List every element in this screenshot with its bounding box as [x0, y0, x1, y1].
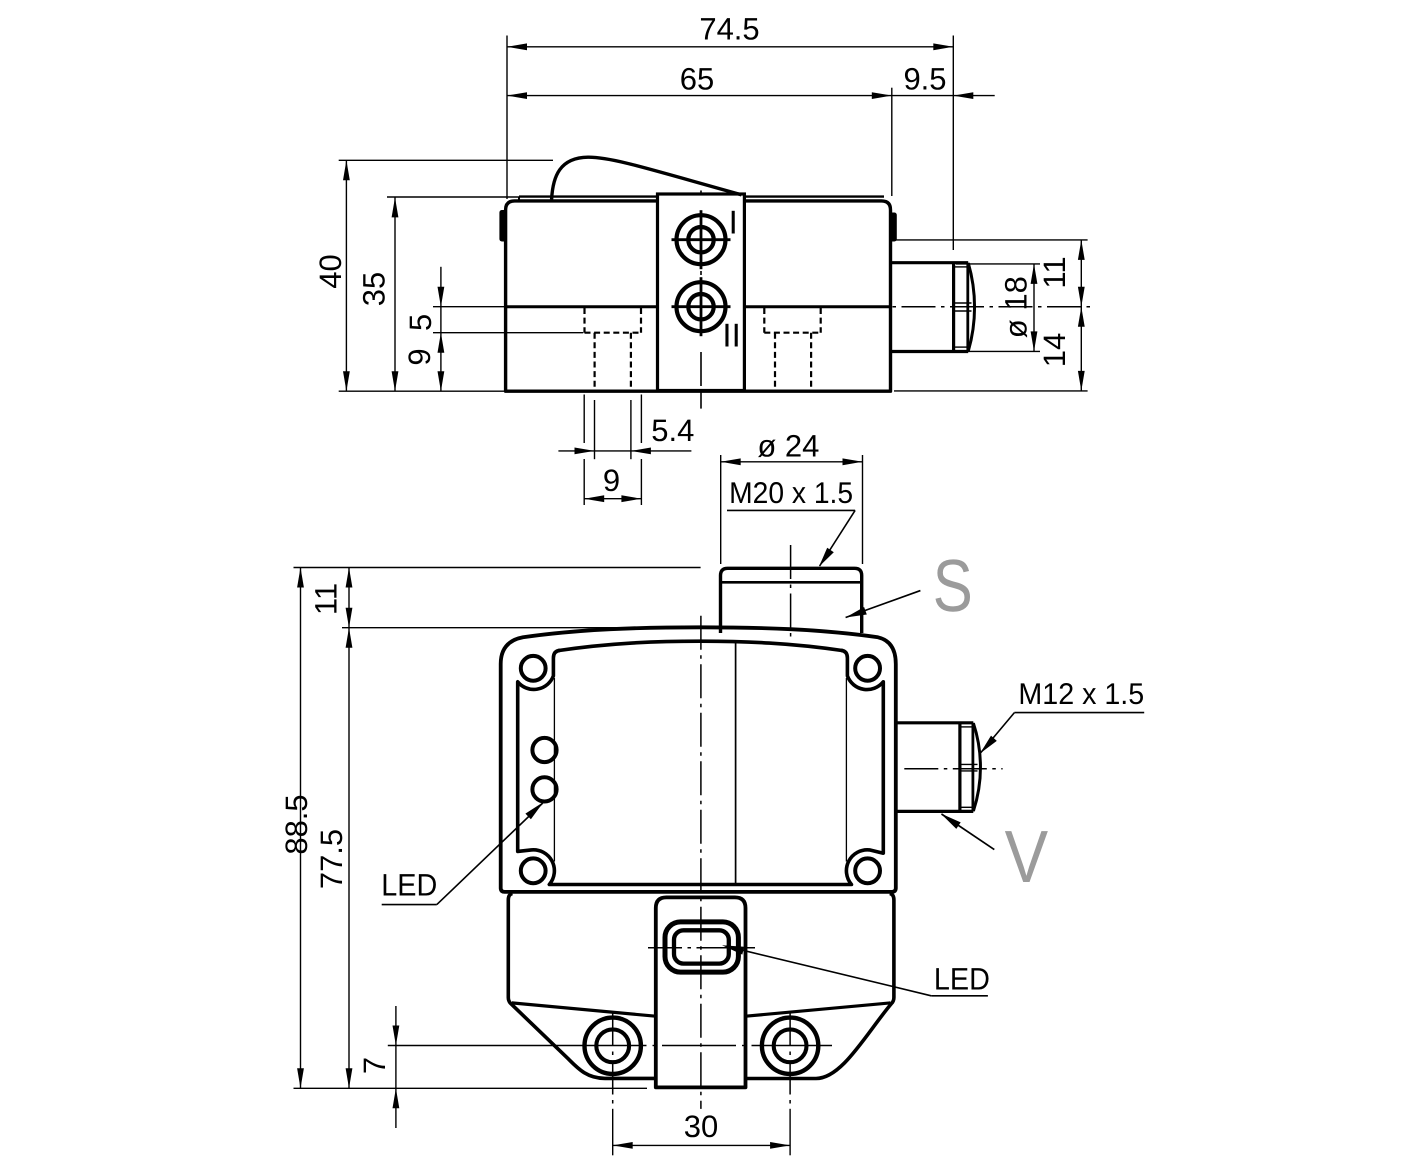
svg-text:ø 18: ø 18	[999, 276, 1034, 338]
svg-text:9: 9	[402, 348, 437, 365]
svg-text:11: 11	[309, 583, 344, 615]
svg-text:V: V	[1005, 815, 1049, 898]
svg-text:LED: LED	[381, 867, 437, 902]
svg-text:9.5: 9.5	[903, 62, 946, 97]
svg-text:74.5: 74.5	[699, 12, 759, 47]
svg-text:5: 5	[403, 314, 438, 331]
svg-text:ø 24: ø 24	[757, 429, 819, 464]
svg-text:II: II	[722, 316, 740, 353]
svg-text:I: I	[729, 204, 738, 241]
svg-text:30: 30	[684, 1109, 718, 1144]
svg-text:7: 7	[357, 1057, 392, 1074]
svg-text:35: 35	[357, 272, 392, 306]
svg-text:M12 x 1.5: M12 x 1.5	[1018, 678, 1144, 711]
svg-text:9: 9	[603, 463, 620, 498]
svg-text:14: 14	[1037, 333, 1072, 367]
svg-text:5.4: 5.4	[651, 413, 694, 448]
svg-text:S: S	[933, 544, 973, 627]
svg-text:40: 40	[313, 254, 348, 288]
svg-text:88.5: 88.5	[279, 794, 314, 854]
svg-text:11: 11	[1037, 256, 1072, 288]
svg-text:LED: LED	[934, 961, 990, 996]
svg-text:65: 65	[680, 62, 714, 97]
svg-text:M20 x 1.5: M20 x 1.5	[729, 477, 853, 510]
svg-text:77.5: 77.5	[314, 829, 349, 889]
